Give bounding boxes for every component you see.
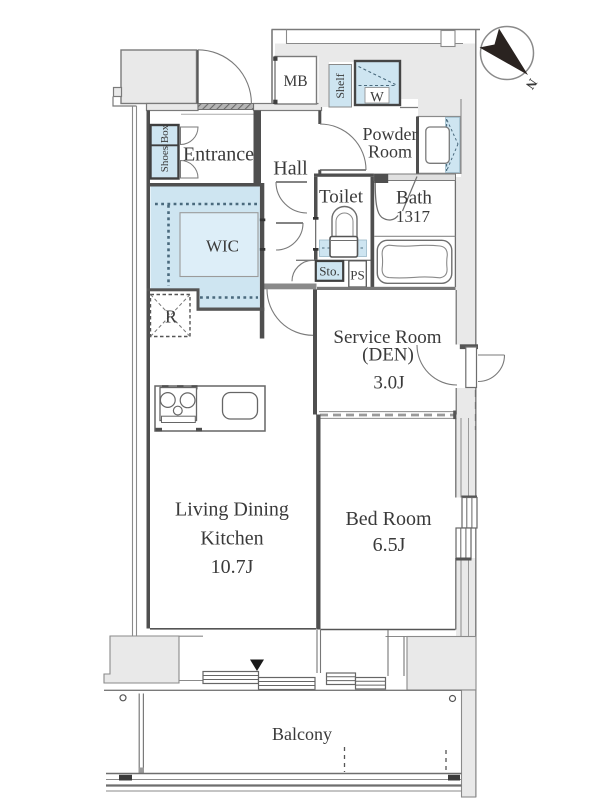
svg-text:Kitchen: Kitchen: [200, 528, 263, 550]
svg-text:W: W: [370, 90, 384, 106]
svg-text:Bed Room: Bed Room: [345, 508, 432, 530]
svg-text:(DEN): (DEN): [362, 345, 414, 366]
svg-text:10.7J: 10.7J: [211, 556, 254, 578]
svg-text:Entrance: Entrance: [183, 144, 254, 166]
svg-text:6.5J: 6.5J: [373, 534, 406, 556]
svg-text:Room: Room: [368, 142, 412, 162]
svg-text:Toilet: Toilet: [319, 187, 364, 208]
svg-text:R: R: [165, 307, 177, 327]
svg-text:Shelf: Shelf: [333, 73, 347, 98]
svg-text:PS: PS: [350, 268, 364, 283]
svg-text:WIC: WIC: [206, 237, 239, 256]
svg-text:1317: 1317: [396, 207, 431, 226]
svg-text:Shoes Box: Shoes Box: [159, 124, 171, 172]
svg-text:MB: MB: [283, 73, 307, 90]
svg-text:Hall: Hall: [273, 158, 308, 180]
svg-text:3.0J: 3.0J: [373, 373, 404, 394]
svg-text:Balcony: Balcony: [272, 724, 332, 744]
svg-text:Sto.: Sto.: [319, 264, 340, 279]
svg-text:Bath: Bath: [396, 188, 432, 209]
svg-text:Living Dining: Living Dining: [175, 499, 289, 521]
